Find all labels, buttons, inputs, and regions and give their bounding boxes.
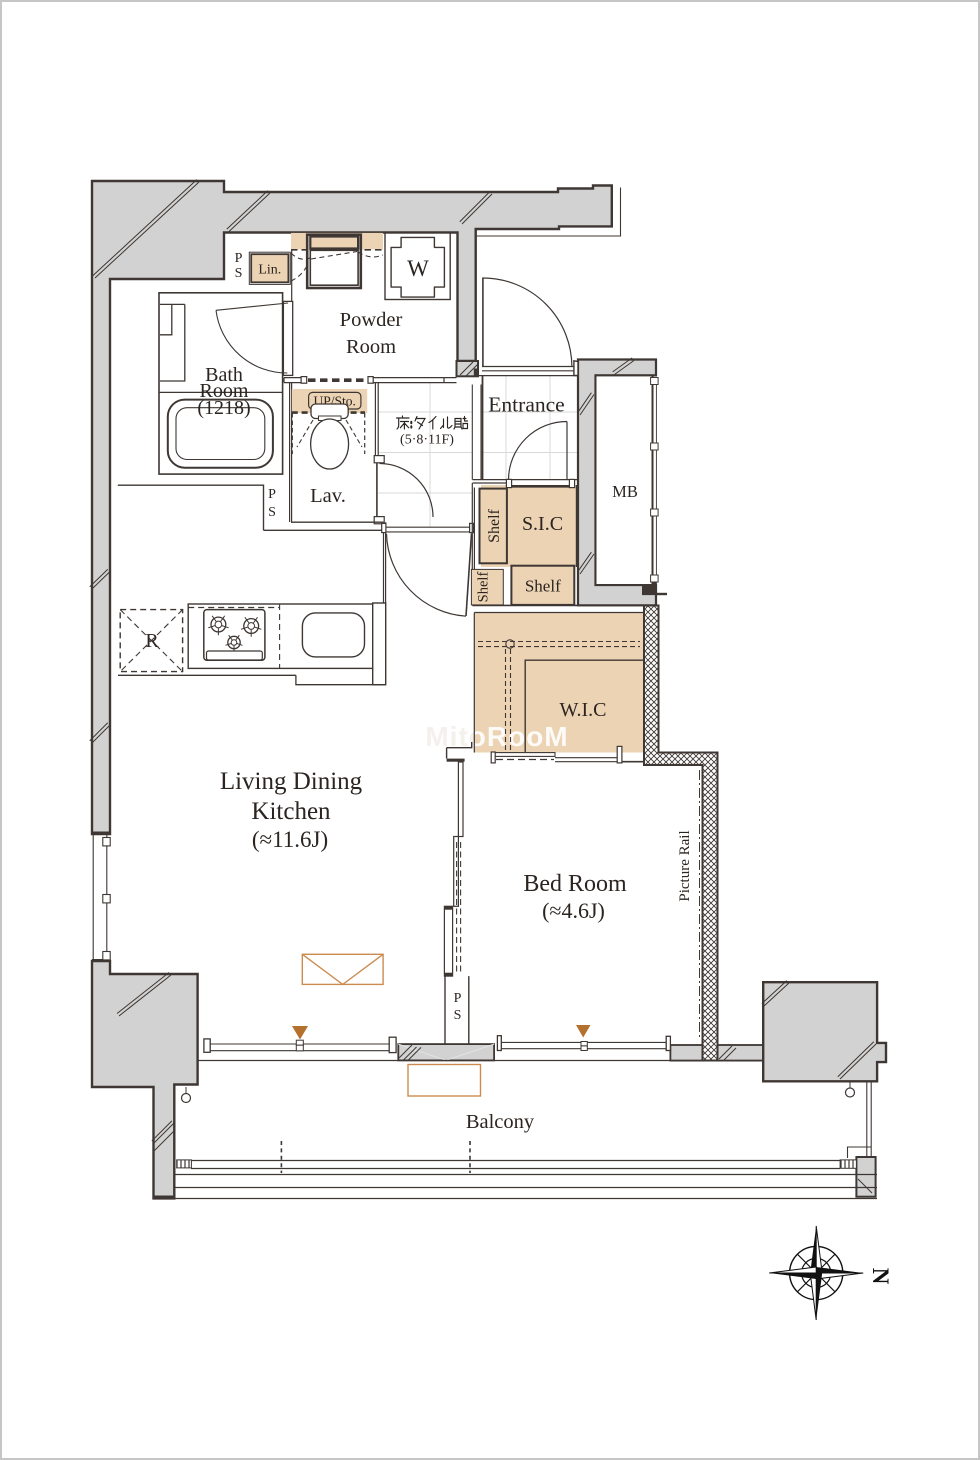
svg-text:Powder: Powder [340, 309, 403, 331]
svg-text:S: S [235, 266, 243, 281]
svg-text:P: P [268, 487, 276, 502]
svg-text:S.I.C: S.I.C [522, 513, 563, 535]
svg-text:Shelf: Shelf [525, 577, 561, 596]
svg-text:MB: MB [612, 482, 638, 501]
svg-text:Kitchen: Kitchen [251, 798, 331, 825]
svg-text:Entrance: Entrance [488, 393, 564, 417]
svg-text:(≈4.6J): (≈4.6J) [542, 898, 605, 923]
svg-text:W: W [407, 256, 429, 281]
svg-text:(≈11.6J): (≈11.6J) [252, 827, 328, 852]
svg-text:Picture Rail: Picture Rail [677, 830, 693, 901]
svg-text:Living Dining: Living Dining [220, 768, 363, 795]
svg-text:S: S [454, 1008, 462, 1023]
svg-text:Balcony: Balcony [466, 1111, 535, 1133]
svg-text:P: P [235, 251, 243, 266]
svg-text:(5·8·11F): (5·8·11F) [400, 433, 454, 448]
svg-text:W.I.C: W.I.C [559, 699, 606, 721]
svg-text:Bed Room: Bed Room [523, 871, 627, 897]
svg-text:(1218): (1218) [197, 397, 250, 419]
svg-text:Shelf: Shelf [486, 508, 503, 542]
svg-text:P: P [454, 991, 462, 1006]
svg-text:S: S [268, 505, 276, 520]
svg-text:Shelf: Shelf [476, 572, 492, 603]
svg-text:Lav.: Lav. [310, 485, 346, 507]
svg-text:N: N [868, 1268, 893, 1285]
svg-text:R: R [145, 630, 159, 652]
svg-text:Lin.: Lin. [258, 263, 281, 278]
svg-text:Room: Room [346, 336, 396, 358]
